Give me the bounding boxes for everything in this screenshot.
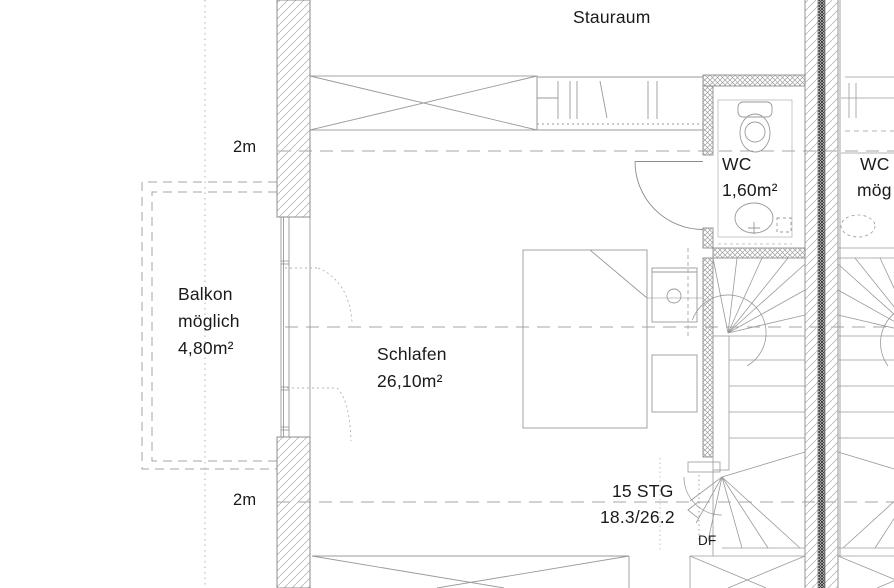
stair-stringer: [713, 336, 729, 470]
label-storage: Stauraum: [573, 8, 650, 26]
toilet: [738, 102, 772, 152]
roof-window-box: [690, 556, 805, 588]
label-dim-bottom: 2m: [233, 492, 256, 509]
neighbor-unit: [838, 0, 894, 588]
floorplan-canvas: Stauraum 2m WC 1,60m² WC mög Balkon mögl…: [0, 0, 894, 588]
bedroom-furniture: [523, 248, 703, 428]
neighbor-basin-dashed: [841, 215, 875, 237]
wardrobe-bottom: [312, 556, 629, 588]
label-wc-area: 1,60m²: [722, 181, 778, 199]
wc-room: [635, 100, 792, 244]
wash-basin: [735, 203, 791, 234]
label-neighbor-note: mög: [857, 181, 892, 199]
label-bedroom-area: 26,10m²: [377, 372, 443, 390]
label-stairs-ratio: 18.3/26.2: [600, 508, 675, 526]
wc-door: [635, 162, 703, 230]
party-wall: [805, 0, 838, 588]
wardrobe-top: [310, 76, 703, 130]
label-dim-top: 2m: [233, 139, 256, 156]
balcony-door-swings: [285, 268, 352, 441]
hanger-strokes: [558, 81, 657, 119]
label-wc-name: WC: [722, 155, 752, 173]
left-exterior-wall: [277, 0, 310, 588]
label-balcony-note: möglich: [178, 312, 240, 330]
bed: [523, 250, 647, 428]
staircase: [660, 258, 805, 588]
neighbor-stairs: [838, 258, 894, 588]
label-bedroom-name: Schlafen: [377, 345, 447, 363]
label-balcony-name: Balkon: [178, 285, 233, 303]
neighbor-wardrobe: [841, 77, 894, 153]
label-roof-window: DF: [698, 534, 716, 548]
label-balcony-area: 4,80m²: [178, 339, 234, 357]
floorplan-drawing: [0, 0, 894, 588]
stair-entry-step: [688, 462, 720, 472]
nightstand: [652, 355, 697, 412]
label-stairs-count: 15 STG: [612, 482, 674, 500]
stair-direction-arrow: [688, 502, 698, 518]
vanity: [652, 248, 697, 337]
label-neighbor-wc: WC: [860, 155, 890, 173]
